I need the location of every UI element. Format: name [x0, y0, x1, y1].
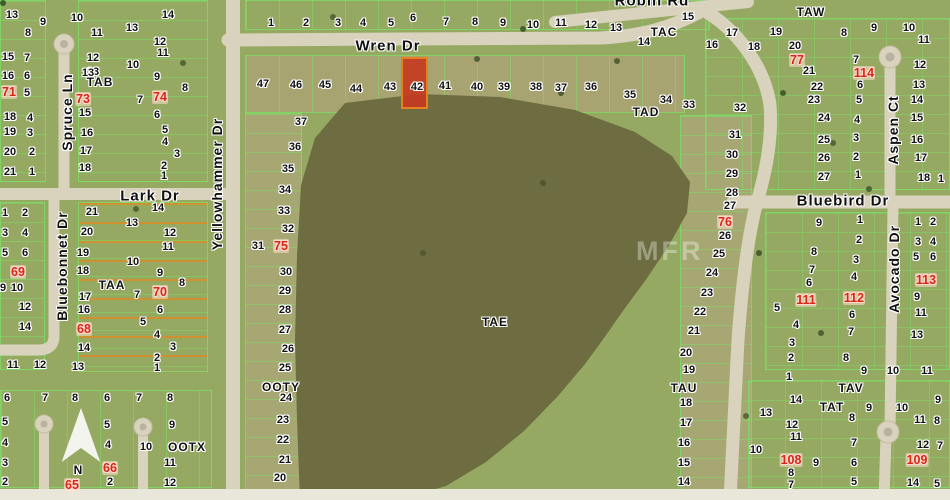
- lot-number-9: 9: [816, 217, 822, 229]
- lot-number-9: 9: [861, 365, 867, 377]
- lot-number-5: 5: [388, 17, 394, 29]
- lot-number-5: 5: [774, 302, 780, 314]
- lot-number-22: 22: [811, 81, 823, 93]
- lot-number-3: 3: [27, 127, 33, 139]
- lot-number-10: 10: [750, 444, 762, 456]
- lot-number-19: 19: [683, 364, 695, 376]
- lot-number-11: 11: [918, 34, 930, 46]
- lot-number-20: 20: [274, 472, 286, 484]
- lot-number-7: 7: [788, 479, 794, 491]
- lot-number-13: 13: [911, 329, 923, 341]
- lot-number-7: 7: [42, 392, 48, 404]
- lot-number-45: 45: [319, 79, 331, 91]
- lot-number-31: 31: [252, 240, 264, 252]
- lot-number-6: 6: [806, 277, 812, 289]
- lot-number-1: 1: [268, 17, 274, 29]
- lot-number-3: 3: [170, 341, 176, 353]
- lot-number-12: 12: [917, 439, 929, 451]
- lot-number-5: 5: [104, 419, 110, 431]
- plat-map-canvas: N 13910148111312111213157166518419320221…: [0, 0, 950, 500]
- lot-number-8: 8: [843, 352, 849, 364]
- lot-number-13: 13: [760, 407, 772, 419]
- lot-number-1: 1: [786, 371, 792, 383]
- lot-number-16: 16: [678, 437, 690, 449]
- lot-number-23: 23: [701, 287, 713, 299]
- lot-number-15: 15: [2, 51, 14, 63]
- lot-number-6: 6: [410, 12, 416, 24]
- lot-number-8: 8: [179, 277, 185, 289]
- lot-number-5: 5: [2, 247, 8, 259]
- lot-number-6: 6: [849, 309, 855, 321]
- lot-number-14: 14: [638, 36, 650, 48]
- lot-number-11: 11: [91, 27, 103, 39]
- lot-number-15: 15: [911, 112, 923, 124]
- lot-number-3: 3: [853, 132, 859, 144]
- lot-number-11: 11: [921, 365, 933, 377]
- lot-number-33: 33: [683, 99, 695, 111]
- watermark: MFR: [636, 236, 703, 267]
- lot-number-37: 37: [555, 82, 567, 94]
- lot-number-21: 21: [4, 166, 16, 178]
- lot-number-38: 38: [530, 81, 542, 93]
- lot-number-27: 27: [724, 200, 736, 212]
- lot-number-18: 18: [918, 172, 930, 184]
- lot-number-30: 30: [726, 149, 738, 161]
- lot-number-42: 42: [411, 81, 423, 93]
- street-label-robin-rd: Robin Rd: [615, 0, 690, 10]
- lot-number-25: 25: [713, 248, 725, 260]
- listing-number-68: 68: [76, 322, 92, 336]
- lot-number-8: 8: [934, 415, 940, 427]
- lot-number-2: 2: [29, 146, 35, 158]
- listing-number-73: 73: [75, 92, 91, 106]
- lot-number-13: 13: [6, 9, 18, 21]
- lot-number-43: 43: [384, 81, 396, 93]
- lot-number-14: 14: [162, 9, 174, 21]
- street-label-lark-dr: Lark Dr: [120, 188, 180, 205]
- listing-number-66: 66: [102, 461, 118, 475]
- listing-number-69: 69: [10, 265, 26, 279]
- listing-number-71: 71: [1, 85, 17, 99]
- lot-number-16: 16: [81, 127, 93, 139]
- lot-number-29: 29: [279, 285, 291, 297]
- lot-number-36: 36: [289, 141, 301, 153]
- compass-n-label: N: [74, 463, 83, 477]
- lot-number-7: 7: [848, 326, 854, 338]
- street-label-spruce-ln: Spruce Ln: [59, 73, 75, 150]
- lot-number-16: 16: [911, 134, 923, 146]
- lot-number-16: 16: [2, 70, 14, 82]
- lot-number-33: 33: [278, 205, 290, 217]
- lot-number-17: 17: [79, 291, 91, 303]
- bottom-road-band: [0, 489, 950, 500]
- lot-number-32: 32: [734, 102, 746, 114]
- lot-number-5: 5: [140, 316, 146, 328]
- lake: [295, 94, 690, 500]
- lot-number-9: 9: [871, 22, 877, 34]
- lot-number-6: 6: [22, 247, 28, 259]
- listing-number-114: 114: [853, 66, 875, 80]
- culdesac-spruce: [54, 34, 74, 54]
- lot-number-4: 4: [930, 236, 936, 248]
- listing-number-111: 111: [795, 293, 816, 307]
- lot-number-4: 4: [854, 114, 860, 126]
- lot-number-17: 17: [726, 27, 738, 39]
- lot-number-9: 9: [40, 16, 46, 28]
- street-label-wren-dr: Wren Dr: [355, 38, 420, 55]
- lot-number-19: 19: [770, 26, 782, 38]
- lot-number-12: 12: [19, 301, 31, 313]
- lot-number-9: 9: [866, 402, 872, 414]
- lot-number-22: 22: [694, 306, 706, 318]
- lot-number-5: 5: [24, 87, 30, 99]
- listing-number-76: 76: [717, 215, 733, 229]
- lot-number-18: 18: [748, 41, 760, 53]
- lot-number-13: 13: [72, 361, 84, 373]
- block-label-tav: TAV: [838, 381, 863, 395]
- lot-number-6: 6: [154, 109, 160, 121]
- lot-number-23: 23: [277, 414, 289, 426]
- lot-number-10: 10: [903, 22, 915, 34]
- lot-number-4: 4: [27, 112, 33, 124]
- lot-number-22: 22: [277, 434, 289, 446]
- lot-number-26: 26: [282, 343, 294, 355]
- lot-number-10: 10: [71, 12, 83, 24]
- lot-number-12: 12: [585, 19, 597, 31]
- lot-number-19: 19: [77, 247, 89, 259]
- lot-number-34: 34: [660, 94, 672, 106]
- lot-number-16: 16: [706, 39, 718, 51]
- block-label-tau: TAU: [671, 381, 698, 395]
- lot-number-6: 6: [4, 392, 10, 404]
- listing-number-74: 74: [152, 90, 168, 104]
- listing-number-70: 70: [152, 285, 168, 299]
- listing-number-109: 109: [906, 453, 929, 467]
- lot-number-10: 10: [527, 19, 539, 31]
- lot-number-2: 2: [853, 151, 859, 163]
- lot-number-14: 14: [678, 476, 690, 488]
- street-label-bluebonnet-dr: Bluebonnet Dr: [54, 211, 70, 320]
- lot-number-9: 9: [914, 291, 920, 303]
- listing-number-77: 77: [789, 53, 805, 67]
- lot-number-8: 8: [72, 392, 78, 404]
- lot-number-21: 21: [803, 65, 815, 77]
- block-label-tat: TAT: [820, 400, 845, 414]
- lot-number-11: 11: [555, 17, 567, 29]
- lot-number-13: 13: [126, 217, 138, 229]
- lot-number-3: 3: [2, 457, 8, 469]
- block-label-tac: TAC: [651, 25, 678, 39]
- lot-number-10: 10: [127, 59, 139, 71]
- lot-number-35: 35: [282, 163, 294, 175]
- lot-number-6: 6: [24, 70, 30, 82]
- lot-number-1: 1: [154, 362, 160, 374]
- lot-number-12: 12: [786, 419, 798, 431]
- block-label-taa: TAA: [99, 278, 126, 292]
- lot-number-14: 14: [907, 477, 919, 489]
- lot-number-12: 12: [87, 52, 99, 64]
- lot-number-10: 10: [127, 256, 139, 268]
- lot-number-9: 9: [935, 394, 941, 406]
- lot-number-34: 34: [279, 184, 291, 196]
- lot-number-24: 24: [706, 267, 718, 279]
- lot-number-31: 31: [729, 129, 741, 141]
- block-label-tab: TAB: [87, 75, 114, 89]
- lot-number-8: 8: [167, 392, 173, 404]
- lot-number-24: 24: [818, 112, 830, 124]
- lot-number-15: 15: [678, 457, 690, 469]
- lot-number-26: 26: [719, 230, 731, 242]
- lot-number-4: 4: [793, 319, 799, 331]
- lot-number-2: 2: [22, 207, 28, 219]
- lot-number-7: 7: [137, 94, 143, 106]
- lot-number-11: 11: [164, 457, 176, 469]
- lot-number-2: 2: [107, 476, 113, 488]
- lot-number-20: 20: [4, 146, 16, 158]
- lot-number-13: 13: [913, 79, 925, 91]
- lot-number-27: 27: [818, 171, 830, 183]
- lot-number-9: 9: [0, 282, 6, 294]
- lot-number-14: 14: [790, 394, 802, 406]
- lot-number-35: 35: [624, 89, 636, 101]
- lot-number-26: 26: [818, 152, 830, 164]
- lot-number-11: 11: [790, 431, 802, 443]
- lot-number-1: 1: [855, 169, 861, 181]
- listing-number-112: 112: [843, 291, 865, 305]
- lot-number-15: 15: [682, 11, 694, 23]
- lot-number-3: 3: [2, 227, 8, 239]
- lot-number-10: 10: [140, 441, 152, 453]
- lot-number-15: 15: [79, 107, 91, 119]
- lot-number-2: 2: [2, 476, 8, 488]
- lot-number-4: 4: [360, 17, 366, 29]
- lot-number-4: 4: [105, 439, 111, 451]
- lot-number-6: 6: [851, 457, 857, 469]
- lot-number-1: 1: [915, 216, 921, 228]
- lot-number-1: 1: [857, 214, 863, 226]
- lot-number-14: 14: [19, 321, 31, 333]
- lot-number-8: 8: [849, 412, 855, 424]
- street-label-bluebird-dr: Bluebird Dr: [797, 193, 890, 210]
- lot-number-1: 1: [29, 166, 35, 178]
- lot-number-1: 1: [938, 173, 944, 185]
- lot-number-7: 7: [136, 392, 142, 404]
- lot-number-11: 11: [162, 241, 174, 253]
- lot-number-37: 37: [295, 116, 307, 128]
- lot-number-13: 13: [610, 22, 622, 34]
- lot-number-16: 16: [78, 304, 90, 316]
- lot-number-5: 5: [851, 476, 857, 488]
- lot-number-3: 3: [853, 254, 859, 266]
- lot-number-23: 23: [808, 94, 820, 106]
- lot-number-12: 12: [164, 477, 176, 489]
- lot-number-47: 47: [257, 78, 269, 90]
- lot-number-10: 10: [11, 282, 23, 294]
- lot-number-8: 8: [182, 82, 188, 94]
- listing-number-113: 113: [915, 273, 937, 287]
- lot-number-39: 39: [498, 81, 510, 93]
- parcel-block: [748, 380, 950, 488]
- lot-number-5: 5: [856, 94, 862, 106]
- lot-number-2: 2: [303, 17, 309, 29]
- lot-number-9: 9: [813, 457, 819, 469]
- lot-number-6: 6: [104, 392, 110, 404]
- lot-number-17: 17: [915, 152, 927, 164]
- lot-number-14: 14: [911, 94, 923, 106]
- lot-number-13: 13: [126, 22, 138, 34]
- lot-number-2: 2: [930, 216, 936, 228]
- lot-number-9: 9: [154, 71, 160, 83]
- lot-number-25: 25: [279, 362, 291, 374]
- lot-number-3: 3: [174, 148, 180, 160]
- listing-number-75: 75: [273, 239, 289, 253]
- lot-number-41: 41: [439, 80, 451, 92]
- lot-number-8: 8: [25, 27, 31, 39]
- listing-number-65: 65: [64, 478, 80, 492]
- lot-number-9: 9: [157, 267, 163, 279]
- lot-number-17: 17: [80, 145, 92, 157]
- lot-number-2: 2: [856, 234, 862, 246]
- lot-number-6: 6: [857, 79, 863, 91]
- lot-number-21: 21: [86, 206, 98, 218]
- lot-number-4: 4: [154, 329, 160, 341]
- lot-number-4: 4: [851, 271, 857, 283]
- block-label-ootx: OOTX: [168, 440, 206, 454]
- lot-number-17: 17: [680, 417, 692, 429]
- lot-number-46: 46: [290, 79, 302, 91]
- parcel-block: [245, 55, 685, 113]
- lot-number-27: 27: [279, 324, 291, 336]
- lot-number-9: 9: [169, 419, 175, 431]
- lot-number-5: 5: [162, 124, 168, 136]
- lot-number-20: 20: [81, 226, 93, 238]
- lot-number-7: 7: [851, 437, 857, 449]
- lot-number-18: 18: [680, 397, 692, 409]
- lot-number-11: 11: [914, 414, 926, 426]
- block-label-taw: TAW: [797, 5, 826, 19]
- tree-cover: [0, 0, 6, 6]
- lot-number-7: 7: [937, 440, 943, 452]
- lot-number-9: 9: [500, 17, 506, 29]
- lot-number-7: 7: [809, 264, 815, 276]
- lot-number-36: 36: [585, 81, 597, 93]
- lot-number-11: 11: [7, 359, 19, 371]
- lot-number-12: 12: [914, 59, 926, 71]
- block-label-tae: TAE: [482, 315, 508, 329]
- lot-number-8: 8: [811, 246, 817, 258]
- lot-number-8: 8: [841, 27, 847, 39]
- street-label-yellowhammer-dr: Yellowhammer Dr: [209, 118, 225, 251]
- lot-number-7: 7: [443, 16, 449, 28]
- street-label-aspen-ct: Aspen Ct: [885, 95, 901, 164]
- lot-number-7: 7: [24, 52, 30, 64]
- lot-number-12: 12: [164, 227, 176, 239]
- lot-number-6: 6: [930, 251, 936, 263]
- lot-number-12: 12: [34, 359, 46, 371]
- lot-number-10: 10: [887, 365, 899, 377]
- lot-number-5: 5: [913, 251, 919, 263]
- parcel-block: [78, 202, 208, 372]
- lot-number-8: 8: [788, 467, 794, 479]
- lot-number-20: 20: [680, 347, 692, 359]
- lot-number-29: 29: [726, 168, 738, 180]
- lot-number-14: 14: [78, 342, 90, 354]
- lot-number-32: 32: [282, 223, 294, 235]
- lot-number-4: 4: [22, 227, 28, 239]
- lot-number-20: 20: [789, 40, 801, 52]
- lot-number-8: 8: [472, 16, 478, 28]
- lot-number-25: 25: [818, 134, 830, 146]
- lot-number-19: 19: [4, 126, 16, 138]
- lot-number-18: 18: [77, 265, 89, 277]
- lot-number-11: 11: [915, 307, 927, 319]
- lot-number-40: 40: [471, 81, 483, 93]
- lot-number-11: 11: [157, 47, 169, 59]
- lot-number-18: 18: [4, 111, 16, 123]
- lot-number-1: 1: [161, 170, 167, 182]
- lot-number-4: 4: [162, 136, 168, 148]
- lot-number-4: 4: [2, 437, 8, 449]
- lot-number-3: 3: [789, 337, 795, 349]
- lot-number-7: 7: [853, 54, 859, 66]
- lot-number-44: 44: [350, 83, 362, 95]
- listing-number-108: 108: [780, 453, 803, 467]
- lot-number-30: 30: [280, 266, 292, 278]
- block-label-ooty: OOTY: [262, 380, 300, 394]
- lot-number-28: 28: [279, 304, 291, 316]
- lot-number-21: 21: [688, 325, 700, 337]
- lot-number-18: 18: [79, 162, 91, 174]
- lot-number-5: 5: [934, 478, 940, 490]
- lot-number-28: 28: [726, 187, 738, 199]
- lot-number-5: 5: [2, 416, 8, 428]
- block-label-tad: TAD: [633, 105, 660, 119]
- lot-number-3: 3: [335, 17, 341, 29]
- lot-number-2: 2: [788, 352, 794, 364]
- lot-number-1: 1: [2, 207, 8, 219]
- lot-number-21: 21: [279, 454, 291, 466]
- lot-number-10: 10: [896, 402, 908, 414]
- street-label-avocado-dr: Avocado Dr: [886, 225, 902, 313]
- lot-number-6: 6: [157, 304, 163, 316]
- lot-number-7: 7: [134, 289, 140, 301]
- lot-number-3: 3: [915, 236, 921, 248]
